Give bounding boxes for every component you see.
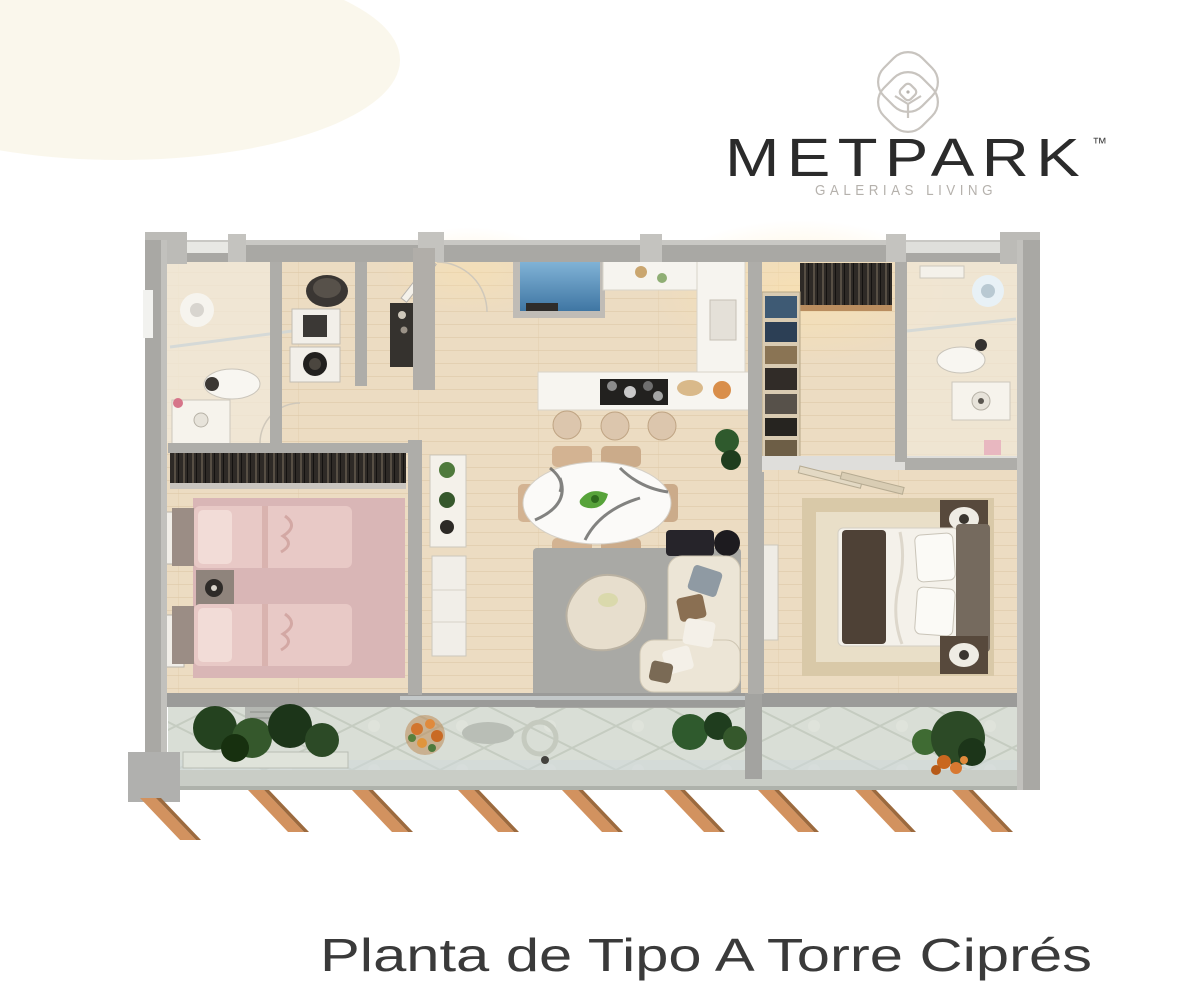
shelf-plant bbox=[439, 492, 455, 508]
terrace-stub-wall bbox=[745, 693, 762, 779]
headboard bbox=[956, 524, 990, 652]
hanging-clothes bbox=[800, 263, 892, 305]
faucet-icon bbox=[526, 303, 558, 311]
master-bed bbox=[838, 524, 990, 652]
pillow bbox=[914, 587, 955, 637]
bar-stool bbox=[601, 412, 629, 440]
bed-throw bbox=[842, 530, 886, 644]
round-chair bbox=[714, 530, 740, 556]
floor-plan bbox=[128, 220, 1040, 840]
logo-tagline: GALERIAS LIVING bbox=[815, 182, 997, 199]
living-room bbox=[533, 530, 741, 708]
stone-decor bbox=[462, 722, 514, 744]
window bbox=[143, 290, 153, 338]
sliding-glass bbox=[400, 696, 745, 700]
flowers bbox=[173, 398, 183, 408]
screenshot-root: METPARK ™ GALERIAS LIVING bbox=[0, 0, 1200, 1000]
toilet-icon bbox=[937, 347, 985, 373]
flower-pot-center bbox=[405, 715, 445, 755]
orange-plate bbox=[713, 381, 731, 399]
closet-strip bbox=[170, 450, 406, 487]
nightstand bbox=[940, 636, 988, 674]
twin-bed-2 bbox=[172, 604, 352, 666]
bread-basket bbox=[677, 380, 703, 396]
tv-console bbox=[666, 530, 714, 556]
potted-plant bbox=[721, 450, 741, 470]
bar-stool bbox=[648, 412, 676, 440]
pillow bbox=[914, 533, 955, 583]
bath-shelf bbox=[920, 266, 964, 278]
potted-plant bbox=[715, 429, 739, 453]
pillow bbox=[682, 618, 716, 649]
shelf-plant bbox=[439, 462, 455, 478]
floor-plan-rendering: METPARK ™ GALERIAS LIVING bbox=[0, 0, 1200, 1000]
bar-stool bbox=[553, 411, 581, 439]
sink bbox=[710, 300, 736, 340]
window bbox=[182, 242, 232, 253]
hall-shelf bbox=[430, 455, 466, 656]
balcony-fins bbox=[140, 790, 1013, 840]
twin-bed-1 bbox=[172, 506, 352, 568]
pink-accessory bbox=[984, 440, 1001, 455]
logo-wordmark: METPARK bbox=[725, 128, 1087, 188]
nightstand bbox=[196, 570, 234, 606]
background-tint bbox=[0, 0, 400, 160]
window bbox=[906, 242, 1002, 253]
brand-logo: METPARK ™ GALERIAS LIVING bbox=[725, 44, 1107, 199]
logo-trademark: ™ bbox=[1092, 135, 1107, 152]
logo-mark-icon bbox=[870, 44, 946, 140]
caption-title: Planta de Tipo A Torre Ciprés bbox=[320, 929, 1092, 981]
